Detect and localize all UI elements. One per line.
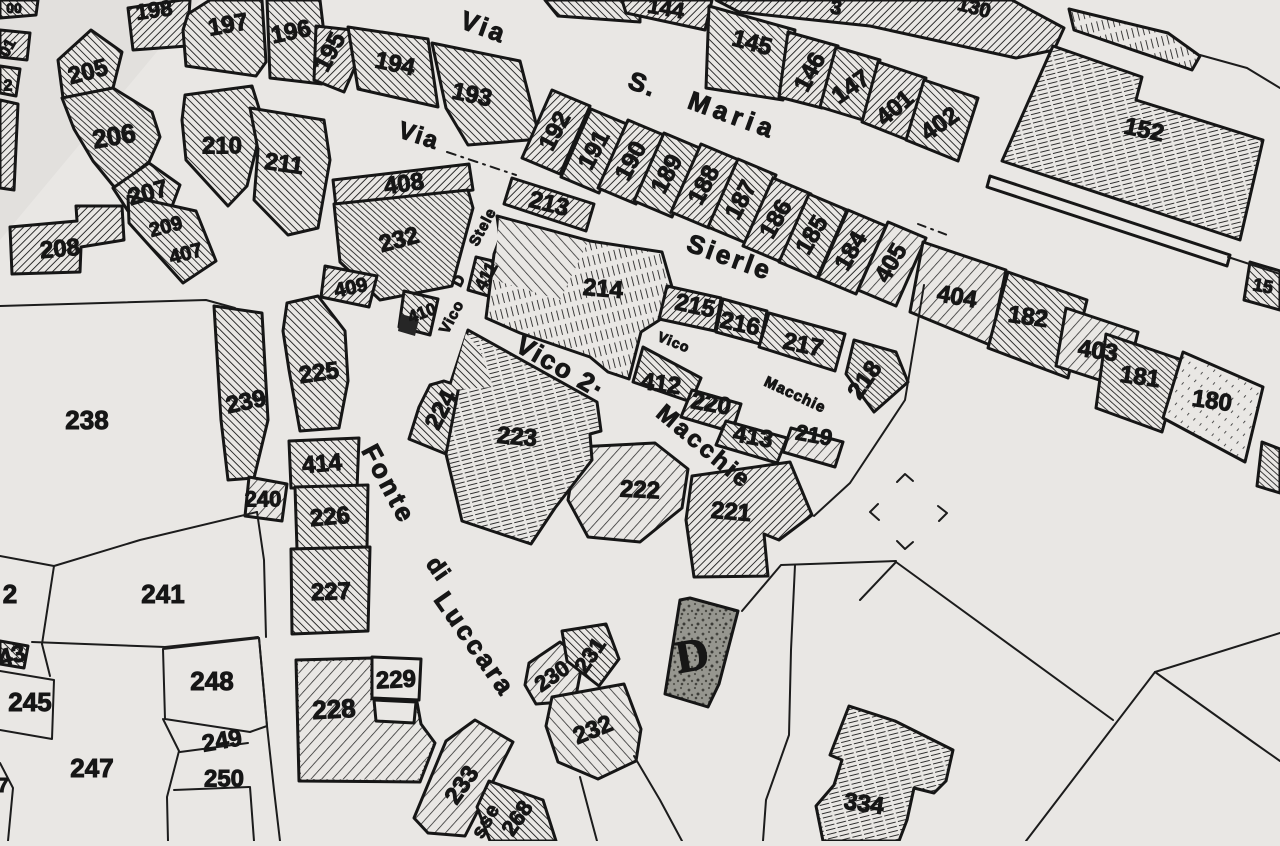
svg-text:408: 408 [382,168,425,200]
svg-text:227: 227 [311,578,352,606]
svg-text:229: 229 [375,665,416,694]
svg-text:00: 00 [6,0,22,16]
svg-text:2: 2 [4,78,13,95]
svg-text:414: 414 [301,449,344,479]
svg-text:225: 225 [297,357,340,389]
svg-text:211: 211 [263,148,305,180]
svg-text:228: 228 [312,693,357,725]
svg-text:208: 208 [39,234,81,264]
svg-text:250: 250 [204,766,244,793]
svg-text:412: 412 [639,368,682,400]
svg-text:181: 181 [1118,361,1161,393]
svg-text:334: 334 [842,788,886,820]
svg-text:214: 214 [582,274,625,304]
svg-text:226: 226 [309,502,351,532]
svg-text:241: 241 [141,579,184,609]
svg-text:15: 15 [1251,274,1274,297]
svg-text:240: 240 [245,487,282,512]
svg-text:221: 221 [710,497,752,527]
svg-text:222: 222 [619,475,660,504]
svg-text:7: 7 [0,775,9,797]
svg-text:403: 403 [1076,335,1119,367]
svg-text:247: 247 [70,753,113,783]
svg-text:210: 210 [202,133,242,160]
svg-text:223: 223 [496,422,538,452]
svg-text:180: 180 [1190,385,1233,417]
svg-text:245: 245 [8,687,51,717]
svg-text:248: 248 [190,666,233,696]
svg-text:238: 238 [65,405,108,435]
svg-text:182: 182 [1006,301,1049,333]
svg-text:2: 2 [3,579,17,609]
